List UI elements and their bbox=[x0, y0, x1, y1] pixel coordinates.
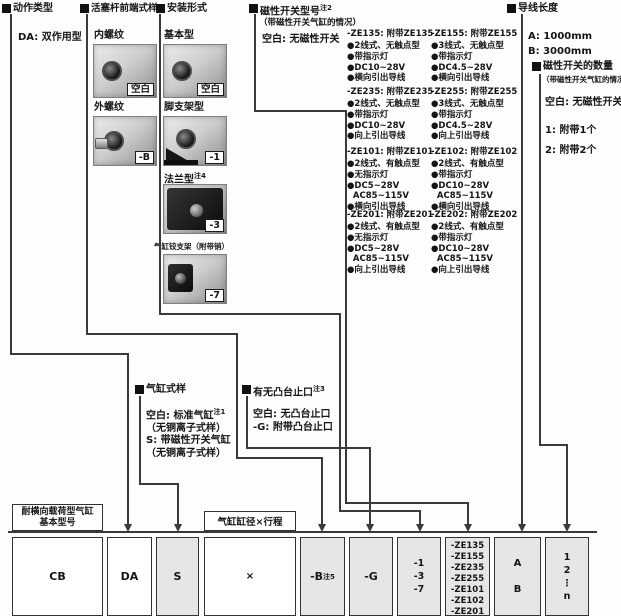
model-cell-action: DA bbox=[107, 537, 152, 616]
connector-line bbox=[339, 313, 341, 511]
rod-end-external-label: 外螺纹 bbox=[94, 102, 124, 114]
section-marker-icon bbox=[135, 385, 144, 394]
connector-line bbox=[86, 333, 237, 335]
switch-name: 附带ZE202 bbox=[471, 210, 518, 220]
code-tag: -B bbox=[135, 151, 154, 164]
label-bore-stroke: 气缸缸径×行程 bbox=[204, 511, 296, 531]
switch-qty-blank: 空白: 无磁性开关 bbox=[545, 97, 621, 109]
cylinder-bore-icon bbox=[172, 61, 192, 81]
model-cell-style: S bbox=[156, 537, 199, 616]
boss-options: 空白: 无凸台止口 -G: 附带凸台止口 bbox=[253, 408, 333, 434]
switch-code: -ZE255: bbox=[431, 87, 468, 97]
connector-line bbox=[566, 444, 568, 525]
connector-line bbox=[254, 14, 256, 110]
model-cell-qty: 1 2 ⋮ n bbox=[545, 537, 589, 616]
cylinder-style-options: 空白: 标准气缸注1 （无铜离子式样） S: 带磁性开关气缸 （无铜离子式样） bbox=[146, 406, 231, 460]
note-ref: 注4 bbox=[194, 172, 206, 180]
code-tag: -7 bbox=[205, 289, 224, 302]
connector-line bbox=[369, 447, 371, 525]
switch-option-ze202: -ZE202: 附带ZE202 ●2线式、有触点型 ●带指示灯 ●DC10~28… bbox=[431, 209, 515, 276]
switch-qty-2: 2: 附带2个 bbox=[545, 145, 596, 157]
section-action-type: 动作类型 bbox=[2, 3, 53, 14]
switch-model-subtitle: （带磁性开关气缸的情况） bbox=[259, 16, 361, 28]
connector-line bbox=[321, 457, 323, 525]
section-title: 活塞杆前端式样 bbox=[91, 3, 158, 14]
switch-qty-1: 1: 附带1个 bbox=[545, 125, 596, 137]
switch-specs: ●2线式、有触点型 ●无指示灯 ●DC5~28V AC85~115V ●横向引出… bbox=[347, 159, 431, 213]
switch-specs: ●3线式、无触点型 ●带指示灯 ●DC4.5~28V ●横向引出导线 bbox=[431, 41, 515, 84]
section-title: 导线长度 bbox=[518, 3, 558, 14]
photo-mount-clevis: -7 bbox=[163, 254, 227, 304]
section-marker-icon bbox=[532, 62, 541, 71]
switch-qty-subtitle: （带磁性开关气缸的情况） bbox=[542, 74, 621, 85]
switch-name: 附带ZE255 bbox=[471, 87, 518, 97]
switch-code: -ZE102: bbox=[431, 147, 468, 157]
switch-option-ze255: -ZE255: 附带ZE255 ●3线式、无触点型 ●带指示灯 ●DC4.5~2… bbox=[431, 86, 515, 142]
cylinder-bore-icon bbox=[176, 129, 196, 149]
section-title: 安装形式 bbox=[167, 3, 207, 14]
connector-line bbox=[467, 502, 469, 525]
connector-line bbox=[254, 110, 347, 112]
photo-rod-external-thread: -B bbox=[93, 116, 157, 166]
connector-line bbox=[246, 396, 248, 447]
model-cell-rod-end: -B注5 bbox=[300, 537, 345, 616]
connector-line bbox=[139, 483, 179, 485]
connector-line bbox=[539, 74, 541, 444]
note-ref: 注5 bbox=[323, 572, 335, 582]
section-title: 磁性开关的数量 bbox=[543, 61, 613, 72]
connector-line bbox=[86, 14, 88, 333]
clevis-pin-hole-icon bbox=[174, 272, 187, 285]
section-title: 动作类型 bbox=[13, 3, 53, 14]
mounting-clevis-label: 气缸铰支架（附带销） bbox=[154, 241, 229, 252]
model-cell-mounting: -1 -3 -7 bbox=[397, 537, 441, 616]
switch-specs: ●2线式、无触点型 ●带指示灯 ●DC10~28V ●横向引出导线 bbox=[347, 41, 431, 84]
foot-bracket-icon bbox=[164, 160, 198, 165]
connector-line bbox=[159, 14, 161, 313]
switch-name: 附带ZE135 bbox=[387, 29, 434, 39]
connector-line bbox=[236, 457, 322, 459]
connector-line bbox=[10, 353, 129, 355]
model-cell-base: CB bbox=[12, 537, 103, 616]
mounting-basic-label: 基本型 bbox=[164, 30, 194, 42]
connector-line bbox=[419, 510, 421, 525]
section-marker-icon bbox=[507, 4, 516, 13]
model-cell-lead-wire: A B bbox=[494, 537, 541, 616]
code-tag: -3 bbox=[205, 219, 224, 232]
lead-wire-options: A: 1000mm B: 3000mm bbox=[528, 29, 592, 59]
connector-line bbox=[521, 14, 523, 525]
photo-rod-internal-thread: 空白 bbox=[93, 44, 157, 98]
model-cell-bore-stroke: × bbox=[204, 537, 296, 616]
code-tag: 空白 bbox=[197, 83, 224, 96]
switch-specs: ●2线式、无触点型 ●带指示灯 ●DC10~28V ●向上引出导线 bbox=[347, 99, 431, 142]
switch-option-ze235: -ZE235: 附带ZE235 ●2线式、无触点型 ●带指示灯 ●DC10~28… bbox=[347, 86, 431, 142]
section-rod-end: 活塞杆前端式样 bbox=[80, 3, 158, 14]
code-tag: 空白 bbox=[127, 83, 154, 96]
switch-specs: ●3线式、无触点型 ●带指示灯 ●DC4.5~28V ●向上引出导线 bbox=[431, 99, 515, 142]
section-marker-icon bbox=[156, 4, 165, 13]
photo-mount-basic: 空白 bbox=[163, 44, 227, 98]
section-title: 气缸式样 bbox=[146, 384, 186, 395]
photo-mount-flange: -3 bbox=[163, 184, 227, 234]
switch-option-ze155: -ZE155: 附带ZE155 ●3线式、无触点型 ●带指示灯 ●DC4.5~2… bbox=[431, 28, 515, 84]
cylinder-bore-icon bbox=[102, 61, 122, 81]
switch-code: -ZE202: bbox=[431, 210, 468, 220]
model-cell-switch: -ZE135 -ZE155 -ZE235 -ZE255 -ZE101 -ZE10… bbox=[445, 537, 490, 616]
switch-code: -ZE235: bbox=[347, 87, 384, 97]
switch-option-ze101: -ZE101: 附带ZE101 ●2线式、有触点型 ●无指示灯 ●DC5~28V… bbox=[347, 146, 431, 213]
model-cell-boss: -G bbox=[349, 537, 393, 616]
piston-rod-icon bbox=[95, 138, 108, 149]
switch-code: -ZE201: bbox=[347, 210, 384, 220]
ordering-code-diagram: 动作类型 活塞杆前端式样 安装形式 磁性开关型号注2 （带磁性开关气缸的情况） … bbox=[0, 0, 621, 616]
clevis-bracket-icon bbox=[168, 264, 193, 292]
switch-name: 附带ZE235 bbox=[387, 87, 434, 97]
switch-name: 附带ZE101 bbox=[387, 147, 434, 157]
section-mounting: 安装形式 bbox=[156, 3, 207, 14]
connector-line bbox=[159, 313, 340, 315]
connector-line bbox=[236, 333, 238, 458]
note-ref: 注3 bbox=[313, 385, 325, 393]
connector-line bbox=[127, 353, 129, 525]
section-boss: 有无凸台止口注3 bbox=[242, 384, 325, 398]
switch-specs: ●2线式、有触点型 ●无指示灯 ●DC5~28V AC85~115V ●向上引出… bbox=[347, 222, 431, 276]
connector-line bbox=[177, 483, 179, 525]
section-marker-icon bbox=[249, 4, 258, 13]
section-cylinder-style: 气缸式样 bbox=[135, 384, 186, 395]
connector-line bbox=[539, 444, 568, 446]
section-switch-qty: 磁性开关的数量 bbox=[532, 61, 613, 72]
connector-line bbox=[345, 502, 469, 504]
photo-mount-foot: -1 bbox=[163, 116, 227, 166]
switch-code: -ZE101: bbox=[347, 147, 384, 157]
section-marker-icon bbox=[80, 4, 89, 13]
note-ref: 注2 bbox=[320, 4, 332, 12]
switch-name: 附带ZE102 bbox=[471, 147, 518, 157]
switch-specs: ●2线式、有触点型 ●带指示灯 ●DC10~28V AC85~115V ●向上引… bbox=[431, 222, 515, 276]
switch-specs: ●2线式、有触点型 ●带指示灯 ●DC10~28V AC85~115V ●横向引… bbox=[431, 159, 515, 213]
flange-hub-icon bbox=[189, 203, 204, 218]
connector-line bbox=[339, 510, 420, 512]
connector-line bbox=[10, 14, 12, 353]
rod-end-internal-label: 内螺纹 bbox=[94, 30, 124, 42]
action-type-option: DA: 双作用型 bbox=[18, 32, 82, 44]
switch-code: -ZE155: bbox=[431, 29, 468, 39]
section-lead-wire: 导线长度 bbox=[507, 3, 558, 14]
section-marker-icon bbox=[2, 4, 11, 13]
switch-model-blank-option: 空白: 无磁性开关 bbox=[262, 34, 339, 46]
label-basic-model: 耐横向载荷型气缸 基本型号 bbox=[12, 504, 103, 531]
table-top-rule bbox=[8, 531, 597, 533]
code-tag: -1 bbox=[205, 151, 224, 164]
note-ref: 注1 bbox=[213, 408, 225, 416]
section-title: 有无凸台止口注3 bbox=[253, 384, 325, 398]
switch-name: 附带ZE201 bbox=[387, 210, 434, 220]
connector-line bbox=[139, 396, 141, 483]
switch-name: 附带ZE155 bbox=[471, 29, 518, 39]
mounting-foot-label: 脚支架型 bbox=[164, 102, 204, 114]
section-marker-icon bbox=[242, 385, 251, 394]
connector-line bbox=[345, 110, 347, 503]
connector-line bbox=[246, 447, 371, 449]
switch-option-ze201: -ZE201: 附带ZE201 ●2线式、有触点型 ●无指示灯 ●DC5~28V… bbox=[347, 209, 431, 276]
switch-option-ze102: -ZE102: 附带ZE102 ●2线式、有触点型 ●带指示灯 ●DC10~28… bbox=[431, 146, 515, 213]
switch-option-ze135: -ZE135: 附带ZE135 ●2线式、无触点型 ●带指示灯 ●DC10~28… bbox=[347, 28, 431, 84]
switch-code: -ZE135: bbox=[347, 29, 384, 39]
